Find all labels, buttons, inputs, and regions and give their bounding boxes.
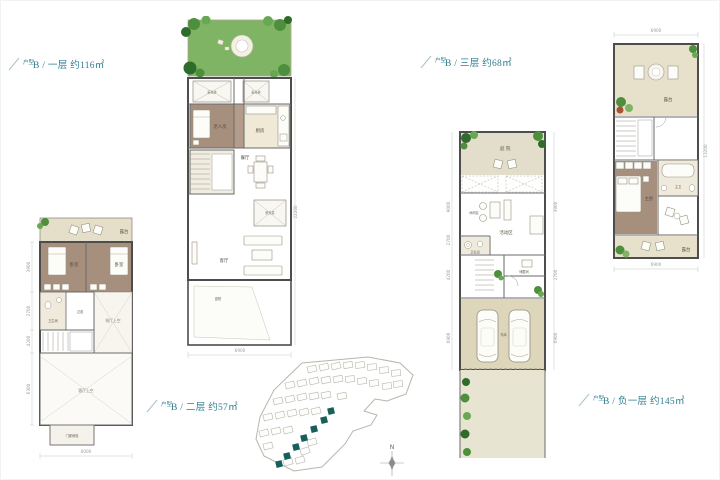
unit-label-prefix: 户型 (593, 397, 600, 403)
unit-label-title: B / 负一层 约145㎡ (603, 393, 685, 407)
terrace-bottom: 露台 (615, 236, 697, 258)
courtyard: 庭院 (461, 131, 547, 175)
room-label: 露台 (120, 228, 129, 235)
room-label: 卫生间 (470, 250, 480, 255)
floor-plan-level2: 露台 卧室 卧室 卫生间 (22, 210, 157, 465)
room-label: 卫生间 (48, 318, 58, 323)
room-label: 主卧 (645, 195, 654, 202)
dim-label: 4200 (26, 335, 31, 346)
driveway-path (194, 286, 270, 340)
toilet-icon (477, 241, 482, 247)
room-label: 休闲区 (469, 210, 479, 215)
leader-line-icon (8, 57, 20, 71)
round-table-icon (634, 64, 678, 80)
chair-icon (655, 241, 664, 250)
dim-label: 4200 (446, 269, 451, 280)
unit-label-prefix: 户型 (161, 403, 168, 409)
dim-label: 13200 (703, 144, 708, 158)
bathroom: 卫生间 (460, 236, 490, 255)
driveway (460, 370, 545, 458)
dining-room: 餐厅 (241, 154, 273, 188)
skylight-band (462, 176, 542, 192)
room-label: 露台 (682, 246, 691, 253)
dimension-left: 3900 2700 4200 6300 (26, 242, 34, 425)
dim-label: 2700 (26, 305, 31, 316)
activity-room: 休闲区 活动区 (469, 200, 543, 236)
car-icon (477, 310, 498, 362)
bathroom: 卫生间 (40, 292, 66, 330)
north-label: N (390, 444, 395, 451)
bathtub-icon (662, 164, 694, 177)
dim-label: 3900 (553, 201, 558, 212)
room-label: 客厅 (220, 257, 229, 264)
master-bedroom: 主卧 (615, 161, 657, 234)
dim-label: 6900 (553, 332, 558, 343)
room-label: 餐厅 (241, 154, 250, 161)
car-icon (509, 310, 530, 362)
chair-icon (493, 159, 503, 169)
stairs (475, 260, 504, 290)
garage: 车库 (461, 299, 544, 369)
site-plan: N (250, 354, 425, 479)
basement-hall (508, 276, 544, 297)
kitchen: 厨房 (244, 104, 290, 148)
dim-label: 9000 (446, 201, 451, 212)
unit-label-title: B / 三层 约68㎡ (445, 55, 512, 69)
toilet-icon (45, 301, 51, 309)
dimension-top: 6900 (614, 28, 698, 38)
dim-label: 6900 (651, 262, 662, 267)
unit-label-basement: 户型 B / 负一层 约145㎡ (578, 393, 685, 407)
sofa-icon (244, 236, 282, 275)
room-label: 采光井 (265, 210, 275, 215)
room-label: 采光井 (251, 90, 261, 95)
room-label: 庭院 (215, 296, 222, 301)
roof-garden (181, 16, 292, 78)
entry-canopy: 门廊雨篷 (50, 425, 94, 445)
dimension-bottom: 6900 (614, 262, 698, 272)
toilet-icon (689, 185, 695, 192)
dimension-bottom: 6000 (40, 449, 132, 459)
dimension-right: 13200 (703, 44, 708, 258)
light-well-b: 采光井 (243, 81, 269, 102)
stairs (616, 117, 666, 160)
master-bath: 主卫 (658, 160, 698, 196)
room-label: 庭院 (500, 145, 512, 152)
living-room: 客厅 (192, 236, 282, 275)
door-arc (508, 276, 518, 286)
dim-label: 3900 (26, 261, 31, 272)
counter-icon (530, 216, 543, 234)
floor-plan-basement: 庭院 休闲区 活动区 卫生间 (446, 124, 564, 469)
dimension-right: 3900 2700 6900 (553, 132, 558, 370)
floorplan-sheet: 户型 B / 一层 约116㎡ 户型 B / 二层 约57㎡ 户型 B / 三层… (0, 0, 720, 480)
unit-label-title: B / 一层 约116㎡ (33, 57, 105, 71)
unit-label-floor3: 户型 B / 三层 约68㎡ (420, 55, 512, 69)
leader-line-icon (578, 393, 590, 407)
living-void: 客厅上空 (40, 353, 132, 425)
dim-label: 6300 (26, 383, 31, 394)
room-label: 露台 (664, 96, 673, 103)
dim-label: 2700 (446, 234, 451, 245)
dim-label: 6900 (651, 28, 662, 33)
room-label: 过道 (77, 309, 84, 314)
unit-label-floor2: 户型 B / 二层 约57㎡ (146, 399, 238, 413)
room-label: 厨房 (256, 127, 265, 134)
room-label: 储藏间 (519, 269, 529, 274)
bed-icon (110, 247, 128, 275)
room-label: 车库 (500, 332, 507, 337)
elder-room: 老人房 (190, 104, 234, 148)
room-label: 客厅上空 (78, 388, 93, 393)
sofa-icon (480, 200, 512, 222)
bed-icon (48, 247, 66, 275)
unit-label-prefix: 户型 (435, 59, 442, 65)
unit-label-floor1: 户型 B / 一层 约116㎡ (8, 57, 105, 71)
tv-cabinet-icon (192, 242, 197, 264)
room-label: 餐厅上空 (105, 318, 120, 323)
hallway (234, 104, 244, 148)
light-well-c: 采光井 (254, 200, 286, 226)
dim-label: 2700 (553, 269, 558, 280)
room-label: 采光井 (207, 90, 217, 95)
room-label: 老人房 (213, 123, 227, 130)
terrace-top: 露台 (615, 45, 698, 116)
chair-icon (665, 207, 675, 217)
dining-table-icon (248, 156, 273, 188)
chair-icon (679, 215, 689, 225)
floor-plan-level3: 6900 露台 (596, 20, 718, 282)
compass-icon: N (380, 444, 404, 476)
room-label: 卧室 (115, 261, 124, 268)
unit-label-prefix: 户型 (23, 61, 30, 67)
dim-label: 6900 (235, 348, 246, 353)
room-label: 卧室 (70, 261, 79, 268)
unit-label-title: B / 二层 约57㎡ (171, 399, 238, 413)
washer-icon (465, 242, 472, 249)
courtyard: 庭院 (188, 280, 291, 345)
corridor: 过道 (77, 309, 84, 314)
dining-void: 餐厅上空 (94, 292, 132, 353)
room-label: 门廊雨篷 (66, 433, 80, 438)
light-well-a: 采光井 (193, 81, 231, 102)
room-label: 活动区 (499, 229, 513, 236)
chair-icon (507, 159, 516, 168)
leader-line-icon (420, 55, 432, 69)
sink-icon (661, 185, 667, 191)
stairs (190, 150, 234, 194)
dimension-right: 22200 (293, 78, 298, 345)
dim-label: 22200 (293, 205, 298, 219)
dim-label: 6000 (81, 449, 92, 454)
door-arc (656, 117, 666, 127)
floor-plan-level1: 采光井 采光井 老人房 厨房 (180, 16, 300, 364)
dim-label: 6900 (446, 332, 451, 343)
dimension-left: 9000 2700 4200 6900 (446, 132, 452, 370)
chair-icon (641, 241, 651, 251)
terrace: 露台 (37, 218, 132, 242)
sink-icon (57, 298, 62, 303)
room-label: 主卫 (675, 184, 682, 189)
